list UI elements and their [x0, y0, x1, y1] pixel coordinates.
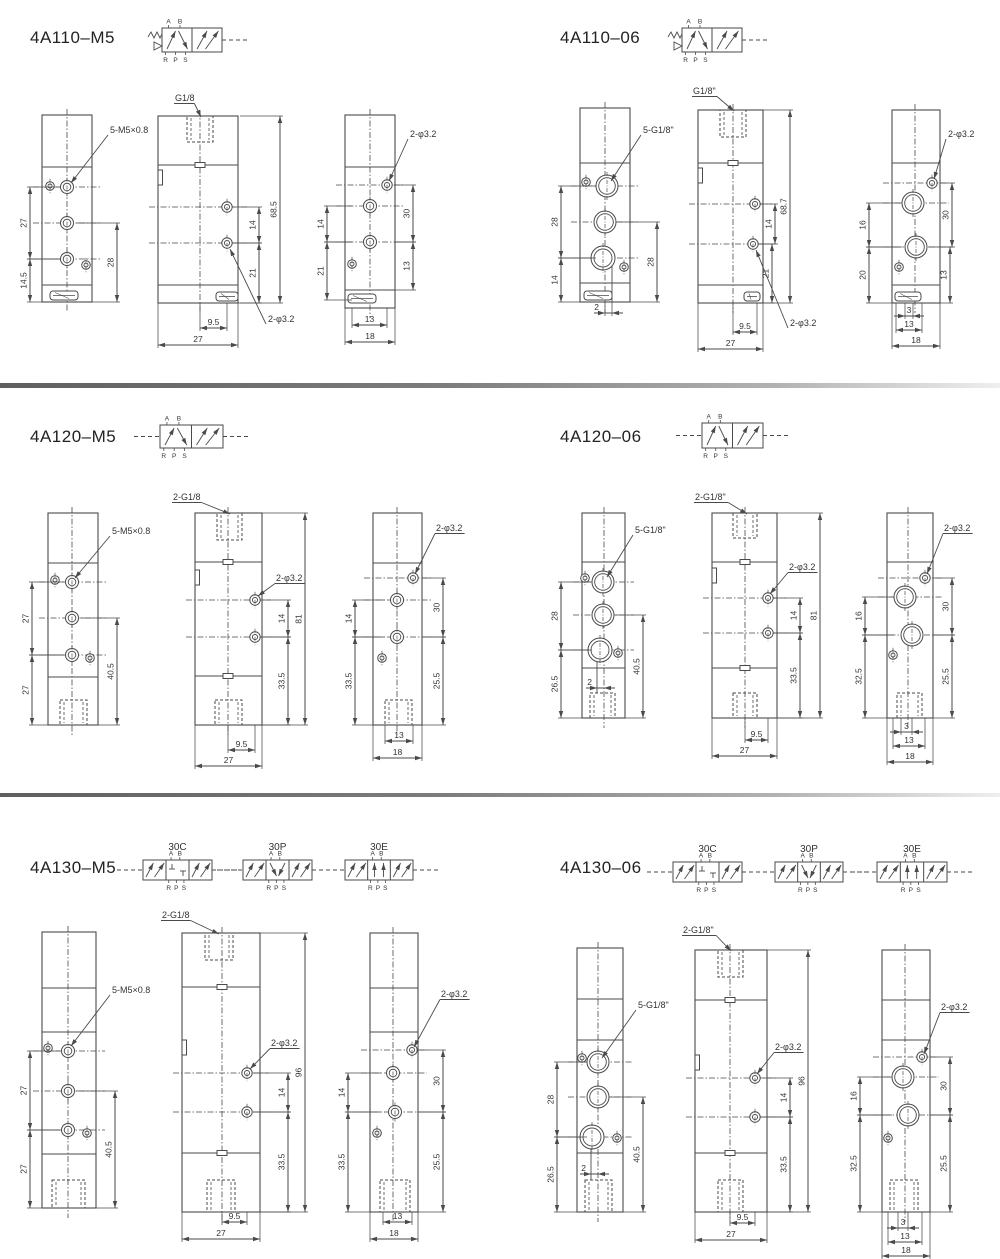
symbol-port-label: S: [703, 57, 708, 64]
dimension-label: 13: [904, 735, 914, 745]
dimension-label: 13: [365, 314, 375, 324]
symbol-port-label: A: [169, 851, 174, 858]
valve-catalog-page: 4A110–M5 4A110–06 4A120–M5 4A120–06 4A13…: [0, 0, 1000, 1259]
arrowhead-icon: [892, 344, 899, 348]
dimension-label: 18: [389, 1228, 399, 1238]
arrowhead-icon: [441, 718, 445, 725]
arrowhead-icon: [788, 1078, 792, 1085]
dimension-label: 81: [294, 614, 304, 624]
arrowhead-icon: [698, 347, 705, 351]
symbol-port-label: R: [703, 453, 708, 460]
arrowhead-icon: [373, 756, 380, 760]
dimension-label: 33.5: [277, 1153, 287, 1170]
arrowhead-icon: [441, 1105, 445, 1112]
dimension-label: 16: [854, 611, 864, 621]
arrowhead-icon: [352, 323, 359, 327]
arrowhead-icon: [231, 343, 238, 347]
arrowhead-icon: [113, 1201, 117, 1208]
arrowhead-icon: [115, 618, 119, 625]
symbol-port-label: P: [173, 57, 177, 64]
panel-4a120-06-drawing: 2826.540.525-G1/8"811433.59.5272-G1/8"2-…: [550, 414, 973, 766]
symbol-port-label: S: [712, 887, 717, 894]
arrowhead-icon: [325, 206, 329, 213]
pilot-triangle-icon: [154, 42, 162, 50]
valve-body-outline: [712, 513, 777, 718]
arrowhead-icon: [28, 1051, 32, 1058]
arrowhead-icon: [325, 242, 329, 249]
dimension-label: 13: [394, 730, 404, 740]
arrowhead-icon: [888, 1240, 895, 1244]
dimension-label: 33.5: [337, 1153, 347, 1170]
symbol-port-label: P: [274, 885, 278, 892]
center-tab: [740, 666, 750, 671]
dimension-label: 13: [904, 319, 914, 329]
arrowhead-icon: [760, 1238, 767, 1242]
arrowhead-icon: [286, 600, 290, 607]
symbol-port-label: A: [800, 853, 805, 860]
arrowhead-icon: [858, 1115, 862, 1122]
arrowhead-icon: [858, 1205, 862, 1212]
technical-drawings-canvas: 2714.5285-M5×0.868.514219.527G1/82-φ3.21…: [0, 0, 1000, 1259]
dimension-label: 33.5: [779, 1156, 789, 1173]
arrowhead-icon: [773, 237, 777, 244]
symbol-port-label: S: [183, 57, 188, 64]
dimension-label: 9.5: [751, 729, 763, 739]
dimension-label: 33.5: [277, 672, 287, 689]
arrowhead-icon: [559, 251, 563, 258]
dimension-label: 30: [432, 603, 442, 613]
dimension-label: 27: [19, 218, 29, 228]
arrowhead-icon: [798, 711, 802, 718]
symbol-port-label: B: [809, 853, 813, 860]
arrowhead-icon: [325, 293, 329, 300]
arrowhead-icon: [257, 207, 261, 214]
symbol-port-label: R: [368, 885, 373, 892]
dimension-label: 21: [316, 266, 326, 276]
arrowhead-icon: [923, 1254, 930, 1258]
symbol-port-label: S: [182, 453, 187, 460]
arrowhead-icon: [441, 637, 445, 644]
arrowhead-icon: [257, 296, 261, 303]
dimension-label: 14: [248, 220, 258, 230]
arrowhead-icon: [248, 748, 255, 752]
arrowhead-icon: [441, 578, 445, 585]
arrowhead-icon: [559, 186, 563, 193]
arrowhead-icon: [559, 582, 563, 589]
symbol-port-label: A: [269, 851, 274, 858]
arrowhead-icon: [406, 739, 413, 743]
leader-label: 2-G1/8: [173, 492, 201, 502]
arrowhead-icon: [240, 1220, 247, 1224]
arrowhead-icon: [948, 1057, 952, 1064]
panel-4a110-m5-drawing: 2714.5285-M5×0.868.514219.527G1/82-φ3.21…: [19, 19, 437, 349]
arrowhead-icon: [948, 247, 952, 254]
arrowhead-icon: [950, 711, 954, 718]
arrowhead-icon: [908, 1226, 915, 1230]
arrowhead-icon: [158, 343, 165, 347]
symbol-port-label: S: [282, 885, 287, 892]
arrowhead-icon: [882, 1254, 889, 1258]
arrowhead-icon: [867, 296, 871, 303]
symbol-port-label: A: [165, 416, 170, 423]
arrowhead-icon: [411, 235, 415, 242]
symbol-port-label: S: [813, 887, 818, 894]
arrowhead-icon: [30, 655, 34, 662]
symbol-port-label: S: [182, 885, 187, 892]
leader-label: 2-φ3.2: [436, 523, 462, 533]
arrowhead-icon: [286, 718, 290, 725]
dimension-label: 18: [365, 331, 375, 341]
symbol-port-label: R: [266, 885, 271, 892]
dimension-label: 18: [393, 747, 403, 757]
arrowhead-icon: [441, 1112, 445, 1119]
dimension-label: 28: [106, 258, 116, 268]
arrowhead-icon: [798, 598, 802, 605]
spring-icon: [148, 32, 162, 38]
panel-4a110-06-drawing: 28142825-G1/8"68.714219.527G1/8"2-φ3.216…: [550, 19, 975, 353]
symbol-port-label: A: [707, 414, 712, 421]
dimension-label: 14.5: [19, 272, 29, 289]
dimension-label: 13: [402, 261, 412, 271]
arrowhead-icon: [286, 637, 290, 644]
arrowhead-icon: [30, 648, 34, 655]
center-tab: [725, 1151, 735, 1156]
dimension-label: 33.5: [344, 672, 354, 689]
dimension-label: 28: [550, 217, 560, 227]
arrowhead-icon: [863, 597, 867, 604]
arrowhead-icon: [113, 1091, 117, 1098]
leader-label: 2-φ3.2: [775, 1042, 801, 1052]
panel-4a130-m5-drawing: 272740.55-M5×0.8961433.59.5272-G1/82-φ3.…: [19, 842, 470, 1242]
dimension-label: 3: [901, 1217, 906, 1227]
dimension-label: 18: [901, 1245, 911, 1255]
dimension-label: 9.5: [236, 739, 248, 749]
center-tab: [217, 1151, 227, 1156]
leader-label: 2-φ3.2: [410, 129, 436, 139]
arrowhead-icon: [388, 340, 395, 344]
symbol-port-label: A: [166, 19, 171, 26]
arrowhead-icon: [303, 718, 307, 725]
leader-label: 2-φ3.2: [789, 562, 815, 572]
dimension-label: 40.5: [104, 1141, 114, 1158]
dimension-label: 13: [939, 270, 949, 280]
dimension-label: 68.5: [269, 201, 279, 218]
arrowhead-icon: [405, 1220, 412, 1224]
arrowhead-icon: [788, 296, 792, 303]
dimension-label: 27: [21, 614, 31, 624]
arrowhead-icon: [695, 1238, 702, 1242]
dimension-label: 27: [19, 1164, 29, 1174]
arrowhead-icon: [346, 1073, 350, 1080]
arrowhead-icon: [28, 252, 32, 259]
leader-label: 2-φ3.2: [944, 523, 970, 533]
symbol-port-label: S: [916, 887, 921, 894]
arrowhead-icon: [559, 711, 563, 718]
dimension-label: 27: [740, 745, 750, 755]
leader-label: 2-φ3.2: [941, 1002, 967, 1012]
arrowhead-icon: [948, 296, 952, 303]
arrowhead-icon: [345, 340, 352, 344]
arrowhead-icon: [303, 1205, 307, 1212]
arrowhead-icon: [441, 630, 445, 637]
dimension-label: 27: [224, 755, 234, 765]
leader-label: G1/8": [693, 86, 716, 96]
spring-icon: [668, 32, 682, 38]
arrowhead-icon: [858, 1077, 862, 1084]
arrowhead-icon: [346, 1205, 350, 1212]
arrowhead-icon: [950, 183, 954, 190]
symbol-port-label: A: [686, 19, 691, 26]
dimension-label: 96: [294, 1068, 304, 1078]
arrowhead-icon: [806, 950, 810, 957]
side-clip: [698, 168, 703, 183]
arrowhead-icon: [353, 637, 357, 644]
arrowhead-icon: [655, 295, 659, 302]
arrowhead-icon: [28, 187, 32, 194]
symbol-port-label: P: [714, 453, 718, 460]
dimension-label: 27: [216, 1228, 226, 1238]
arrowhead-icon: [788, 1117, 792, 1124]
arrowhead-icon: [255, 764, 262, 768]
arrowhead-icon: [770, 754, 777, 758]
arrowhead-icon: [655, 222, 659, 229]
valve-body-outline: [195, 513, 262, 725]
arrowhead-icon: [228, 748, 235, 752]
arrowhead-icon: [182, 1237, 189, 1241]
arrowhead-icon: [598, 311, 605, 315]
arrowhead-icon: [748, 1221, 755, 1225]
dimension-label: 25.5: [939, 1155, 949, 1172]
arrowhead-icon: [441, 1050, 445, 1057]
arrowhead-icon: [948, 1108, 952, 1115]
dimension-label: 26.5: [550, 675, 560, 692]
arrowhead-icon: [555, 1062, 559, 1069]
symbol-port-label: R: [161, 453, 166, 460]
dimension-label: 14: [764, 219, 774, 229]
center-tab: [728, 161, 738, 166]
arrowhead-icon: [28, 1123, 32, 1130]
dimension-label: 14: [550, 275, 560, 285]
arrowhead-icon: [28, 1130, 32, 1137]
symbol-port-label: R: [696, 887, 701, 894]
arrowhead-icon: [385, 739, 392, 743]
leader-label: 2-φ3.2: [441, 989, 467, 999]
dimension-label: 16: [858, 220, 868, 230]
dimension-label: 68.7: [779, 198, 789, 215]
symbol-port-label: R: [798, 887, 803, 894]
leader-label: 5-G1/8": [635, 525, 666, 535]
symbol-port-label: B: [718, 414, 722, 421]
dimension-label: 18: [911, 335, 921, 345]
leader-label: G1/8: [175, 93, 195, 103]
arrowhead-icon: [712, 754, 719, 758]
symbol-port-label: A: [370, 851, 375, 858]
arrowhead-icon: [641, 615, 645, 622]
leader-label: 5-G1/8": [638, 1000, 669, 1010]
panel-4a130-06-drawing: 2826.540.525-G1/8"961433.59.5272-G1/8"2-…: [546, 844, 974, 1259]
arrowhead-icon: [950, 628, 954, 635]
side-clip: [158, 170, 163, 185]
arrowhead-icon: [555, 1130, 559, 1137]
arrowhead-icon: [641, 711, 645, 718]
arrowhead-icon: [858, 1108, 862, 1115]
arrowhead-icon: [195, 764, 202, 768]
valve-body-outline: [373, 513, 422, 725]
symbol-port-label: P: [376, 885, 380, 892]
arrowhead-icon: [286, 1205, 290, 1212]
arrowhead-icon: [286, 630, 290, 637]
dimension-label: 14: [789, 611, 799, 621]
arrowhead-icon: [353, 630, 357, 637]
symbol-port-label: P: [174, 885, 178, 892]
arrowhead-icon: [773, 204, 777, 211]
arrowhead-icon: [383, 1220, 390, 1224]
arrowhead-icon: [798, 626, 802, 633]
arrowhead-icon: [28, 259, 32, 266]
arrowhead-icon: [303, 513, 307, 520]
arrowhead-icon: [257, 236, 261, 243]
arrowhead-icon: [863, 635, 867, 642]
dimension-label: 13: [900, 1231, 910, 1241]
arrowhead-icon: [950, 240, 954, 247]
panel-4a120-m5-drawing: 272740.55-M5×0.8811433.59.5272-G1/82-φ3.…: [21, 416, 465, 770]
dimension-label: 30: [941, 602, 951, 612]
dimension-label: 3: [907, 305, 912, 315]
arrowhead-icon: [933, 344, 940, 348]
arrowhead-icon: [346, 1105, 350, 1112]
arrowhead-icon: [913, 314, 920, 318]
arrowhead-icon: [898, 314, 905, 318]
arrowhead-icon: [411, 1237, 418, 1241]
arrowhead-icon: [411, 283, 415, 290]
arrowhead-icon: [863, 628, 867, 635]
dimension-label: 30: [939, 1081, 949, 1091]
symbol-port-label: B: [177, 416, 181, 423]
dimension-label: 20: [858, 270, 868, 280]
leader-label: 2-φ3.2: [948, 129, 974, 139]
arrowhead-icon: [887, 760, 894, 764]
dimension-label: 21: [248, 268, 258, 278]
dimension-label: 30: [402, 209, 412, 219]
leader-label: 5-M5×0.8: [112, 526, 150, 536]
arrowhead-icon: [894, 730, 901, 734]
leader-label: 2-G1/8": [683, 925, 714, 935]
leader-label: 5-G1/8": [643, 125, 674, 135]
dimension-label: 14: [277, 1088, 287, 1098]
arrowhead-icon: [750, 330, 757, 334]
dimension-label: 27: [21, 685, 31, 695]
arrowhead-icon: [415, 756, 422, 760]
symbol-port-label: R: [901, 887, 906, 894]
side-clip: [712, 568, 717, 583]
dimension-label: 27: [19, 1086, 29, 1096]
arrowhead-icon: [788, 110, 792, 117]
arrowhead-icon: [818, 711, 822, 718]
arrowhead-icon: [641, 1097, 645, 1104]
arrowhead-icon: [893, 744, 900, 748]
arrowhead-icon: [896, 328, 903, 332]
dimension-label: 14: [316, 219, 326, 229]
arrowhead-icon: [28, 295, 32, 302]
dimension-label: 14: [779, 1093, 789, 1103]
arrowhead-icon: [278, 116, 282, 123]
arrowhead-icon: [948, 1205, 952, 1212]
dimension-label: 40.5: [632, 1146, 642, 1163]
pilot-triangle-icon: [674, 42, 682, 50]
leader-label: 2-φ3.2: [276, 573, 302, 583]
dimension-label: 81: [809, 611, 819, 621]
arrowhead-icon: [950, 635, 954, 642]
symbol-port-label: R: [166, 885, 171, 892]
symbol-port-label: R: [683, 57, 688, 64]
arrowhead-icon: [891, 1226, 898, 1230]
arrowhead-icon: [612, 311, 619, 315]
arrowhead-icon: [411, 185, 415, 192]
dimension-label: 9.5: [737, 1212, 749, 1222]
leader-label: 5-M5×0.8: [110, 125, 148, 135]
dimension-label: 32.5: [854, 668, 864, 685]
arrowhead-icon: [303, 933, 307, 940]
dimension-label: 2: [594, 302, 599, 312]
symbol-port-label: P: [693, 57, 697, 64]
dimension-label: 25.5: [432, 1153, 442, 1170]
arrowhead-icon: [370, 1237, 377, 1241]
dimension-label: 30: [941, 210, 951, 220]
dimension-label: 40.5: [106, 663, 116, 680]
symbol-port-label: B: [178, 19, 182, 26]
symbol-port-label: B: [912, 853, 916, 860]
arrowhead-icon: [912, 730, 919, 734]
symbol-port-label: B: [178, 851, 182, 858]
arrowhead-icon: [641, 1205, 645, 1212]
arrowhead-icon: [353, 718, 357, 725]
arrowhead-icon: [806, 1205, 810, 1212]
symbol-port-label: S: [383, 885, 388, 892]
arrowhead-icon: [918, 744, 925, 748]
arrowhead-icon: [559, 650, 563, 657]
side-clip: [695, 1055, 700, 1070]
dimension-label: 18: [905, 751, 915, 761]
dimension-label: 33.5: [789, 667, 799, 684]
dimension-label: 3: [904, 721, 909, 731]
leader-label: 2-φ3.2: [271, 1038, 297, 1048]
arrowhead-icon: [286, 1105, 290, 1112]
symbol-port-label: B: [278, 851, 282, 858]
arrowhead-icon: [257, 243, 261, 250]
side-clip: [195, 570, 200, 585]
dimension-label: 9.5: [208, 317, 220, 327]
leader-label: 2-φ3.2: [268, 314, 294, 324]
dimension-label: 28: [646, 257, 656, 267]
arrowhead-icon: [115, 295, 119, 302]
arrowhead-icon: [559, 643, 563, 650]
arrowhead-icon: [200, 326, 207, 330]
center-tab: [725, 998, 735, 1003]
symbol-port-label: B: [698, 19, 702, 26]
arrowhead-icon: [788, 1205, 792, 1212]
dimension-label: 14: [277, 614, 287, 624]
arrowhead-icon: [867, 240, 871, 247]
arrowhead-icon: [948, 1115, 952, 1122]
symbol-port-label: A: [699, 853, 704, 860]
arrowhead-icon: [286, 1073, 290, 1080]
valve-body-outline: [42, 932, 96, 1208]
center-tab: [217, 985, 227, 990]
arrowhead-icon: [926, 760, 933, 764]
symbol-port-label: A: [903, 853, 908, 860]
arrowhead-icon: [915, 1240, 922, 1244]
symbol-port-label: B: [379, 851, 383, 858]
